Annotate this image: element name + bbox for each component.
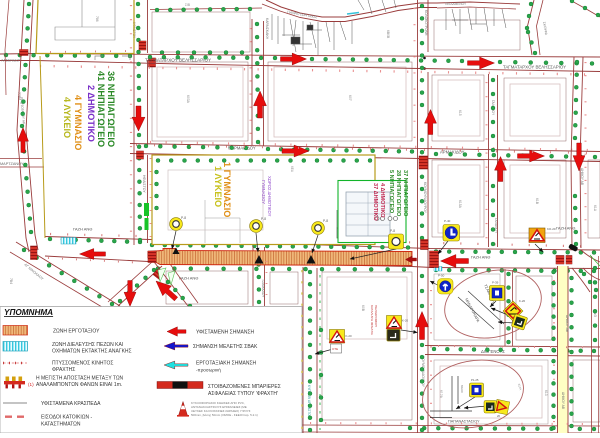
svg-text:20: 20 (497, 414, 501, 418)
svg-text:ΚΟΛΟΚΟΤΡΩΝΗ: ΚΟΛΟΚΟΤΡΩΝΗ (424, 10, 428, 36)
svg-text:Ρ-8: Ρ-8 (323, 219, 328, 223)
svg-text:ΚΥΠΡΙΩΝ ΑΓΩΝΙΣΤΩΝ: ΚΥΠΡΙΩΝ ΑΓΩΝΙΣΤΩΝ (307, 385, 311, 419)
svg-text:ΜΕΩΣ: ΜΕΩΣ (460, 385, 464, 393)
svg-text:37 ΔΗΜΟΤΙΚΟ: 37 ΔΗΜΟΤΙΚΟ (372, 183, 378, 221)
svg-text:Ρ-40: Ρ-40 (444, 219, 451, 223)
svg-text:500mm, βάσης 50mm (ΟΜΟΕ - ΣΕΕΟ: 500mm, βάσης 50mm (ΟΜΟΕ - ΣΕΕΟ/παρ. 5.2.… (191, 413, 258, 417)
svg-text:ΣΗΜΑΝΣΗ ΜΕΛΕΤΗΣ ΣΒΑΚ: ΣΗΜΑΝΣΗ ΜΕΛΕΤΗΣ ΣΒΑΚ (193, 344, 258, 350)
svg-text:6ΕΑ: 6ΕΑ (290, 166, 294, 173)
svg-text:ΖΩΝΗ ΕΡΓΟΤΑΞΙΟΥ: ΖΩΝΗ ΕΡΓΟΤΑΞΙΟΥ (53, 329, 100, 335)
svg-text:Ρ-8: Ρ-8 (181, 216, 186, 220)
svg-text:ΥΦΙΣΤΑΜΕΝΗ ΣΗΜΑΝΣΗ: ΥΦΙΣΤΑΜΕΝΗ ΣΗΜΑΝΣΗ (196, 330, 255, 336)
svg-text:28 ΝΗΠΙΑΓΩΓΕΙΟ: 28 ΝΗΠΙΑΓΩΓΕΙΟ (395, 170, 401, 217)
svg-text:6Β0Β: 6Β0Β (386, 30, 390, 39)
svg-text:Ρ-39: Ρ-39 (492, 281, 499, 285)
svg-text:ΕΡΓΟΤΑΞΙΑΚΗ ΣΗΜΑΝΣΗ: ΕΡΓΟΤΑΞΙΑΚΗ ΣΗΜΑΝΣΗ (196, 361, 257, 367)
svg-text:60Β: 60Β (361, 305, 365, 312)
svg-text:ΠΕΙΔΑΜΕΝΟΥ: ΠΕΙΔΑΜΕΝΟΥ (445, 2, 467, 6)
svg-text:5 ΝΗΠΙΑΓΩΓΕΙΟ: 5 ΝΗΠΙΑΓΩΓΕΙΟ (388, 170, 394, 214)
svg-text:61Δ: 61Δ (593, 205, 597, 212)
svg-text:615: 615 (458, 110, 462, 116)
svg-text:ΔΗΜΟΥ ΑΒ: ΔΗΜΟΥ ΑΒ (561, 392, 565, 410)
svg-text:4 ΔΗΜΟΤΙΚΟ: 4 ΔΗΜΟΤΙΚΟ (379, 183, 385, 218)
svg-text:ΤΑΓΜΑΤΑΡΧΟΥ ΒΕΛΗΣΣΑΡΙΟΥ: ΤΑΓΜΑΤΑΡΧΟΥ ΒΕΛΗΣΣΑΡΙΟΥ (503, 65, 566, 70)
svg-text:615Α: 615Α (458, 200, 462, 209)
svg-text:ΥΠΟΜΝΗΜΑ: ΥΠΟΜΝΗΜΑ (4, 308, 53, 317)
svg-text:Ρ-50: Ρ-50 (438, 274, 445, 278)
svg-text:ΕΙΣΟΔΟΙ ΚΑΤΟΙΚΙΩΝ -: ΕΙΣΟΔΟΙ ΚΑΤΟΙΚΙΩΝ - (41, 415, 93, 421)
svg-text:ΓΑΖΗ ΑΝΘ: ΓΑΖΗ ΑΝΘ (471, 255, 490, 260)
svg-text:ΛΑΣΕΝΙΔΟΥ: ΛΑΣΕΝΙΔΟΥ (1, 59, 22, 63)
svg-text:4 ΛΥΚΕΙΟ: 4 ΛΥΚΕΙΟ (62, 97, 72, 138)
svg-text:ΔΗΜΟΥ ΑΒ: ΔΗΜΟΥ ΑΒ (580, 168, 584, 186)
svg-text:ΑΝΑΛΑΜΠΟΝΤΩΝ ΦΑΝΩΝ ΕΙΝΑΙ 1m.: ΑΝΑΛΑΜΠΟΝΤΩΝ ΦΑΝΩΝ ΕΙΝΑΙ 1m. (36, 382, 122, 388)
svg-text:37 ΝΗΠΙΑΓΩΓΕΙΟ: 37 ΝΗΠΙΑΓΩΓΕΙΟ (402, 170, 408, 217)
svg-text:ΥΦΙΣΤΑΜΕΝΑ ΚΡΑΣΠΕΔΑ: ΥΦΙΣΤΑΜΕΝΑ ΚΡΑΣΠΕΔΑ (41, 401, 101, 407)
svg-text:ΚΑΤΑΣΤΗΜΑΤΩΝ: ΚΑΤΑΣΤΗΜΑΤΩΝ (41, 422, 81, 428)
svg-text:1 ΛΥΚΕΙΟ: 1 ΛΥΚΕΙΟ (213, 166, 223, 207)
svg-text:41 ΝΗΠΙΑΓΩΓΕΙΟ: 41 ΝΗΠΙΑΓΩΓΕΙΟ (96, 71, 106, 147)
svg-text:607: 607 (348, 95, 352, 101)
svg-text:ΚΑΡΑΙΣΚΑΚΗ: ΚΑΡΑΙΣΚΑΚΗ (265, 18, 269, 40)
svg-text:ΚΑΤΑΛΗΨΗ ΦΡΕΑΤΙΑ: ΚΑΤΑΛΗΨΗ ΦΡΕΑΤΙΑ (370, 305, 374, 335)
svg-text:ΓΑΖΗ ΑΝΘ: ΓΑΖΗ ΑΝΘ (556, 226, 575, 231)
svg-text:ΦΡΑΧΤΗΣ: ΦΡΑΧΤΗΣ (52, 367, 75, 373)
svg-text:ΜΑΡΤΖΑΝΟΥ: ΜΑΡΤΖΑΝΟΥ (0, 162, 24, 166)
svg-text:Κ-20: Κ-20 (519, 299, 525, 303)
svg-text:ΤΣΑΜΑΔΟΥ: ΤΣΑΜΑΔΟΥ (261, 279, 265, 298)
svg-text:ΚΟΥΜΟΥΝΔΟΥΡΟΥ: ΚΟΥΜΟΥΝΔΟΥΡΟΥ (423, 182, 427, 214)
svg-text:Κ-20: Κ-20 (402, 319, 408, 323)
svg-text:4 ΓΥΜΝΑΣΙΟ: 4 ΓΥΜΝΑΣΙΟ (73, 95, 83, 150)
svg-text:(1): (1) (28, 382, 34, 387)
svg-text:ΟΧΗΜΑΤΩΝ ΕΚΤΑΚΤΗΣ ΑΝΑΓΚΗΣ: ΟΧΗΜΑΤΩΝ ΕΚΤΑΚΤΗΣ ΑΝΑΓΚΗΣ (52, 349, 132, 355)
svg-text:ΓΑΖΗ ΑΝΘ: ΓΑΖΗ ΑΝΘ (179, 276, 198, 281)
svg-text:36 ΝΗΠΙΑΓΩΓΕΙΟ: 36 ΝΗΠΙΑΓΩΓΕΙΟ (106, 71, 116, 147)
svg-text:ΠΤΥΣΣΟΜΕΝΟΣ ΚΙΝΗΤΟΣ: ΠΤΥΣΣΟΜΕΝΟΣ ΚΙΝΗΤΟΣ (52, 361, 113, 367)
svg-text:Η ΜΕΓΙΣΤΗ ΑΠΟΣΤΑΣΗ ΜΕΤΑΞΥ ΤΩΝ: Η ΜΕΓΙΣΤΗ ΑΠΟΣΤΑΣΗ ΜΕΤΑΞΥ ΤΩΝ (36, 376, 124, 382)
svg-text:ΔΗΜΟΥ ΑΒ: ΔΗΜΟΥ ΑΒ (565, 315, 569, 333)
svg-text:ΟΤΕ: ΟΤΕ (332, 347, 338, 351)
svg-text:ΣΙΒ: ΣΙΒ (185, 3, 190, 7)
svg-text:ΧΩΡΟΣ ΔΗΜΟΤΙΚΟΥ: ΧΩΡΟΣ ΔΗΜΟΤΙΚΟΥ (267, 176, 272, 217)
svg-text:Ρ1-25: Ρ1-25 (471, 378, 479, 382)
svg-text:2 ΔΗΜΟΤΙΚΟ: 2 ΔΗΜΟΤΙΚΟ (86, 85, 96, 142)
svg-text:ΣΤΟΙΒΑΖΟΜΕΝΕΣ ΜΠΑΡΙΕΡΕΣ: ΣΤΟΙΒΑΖΟΜΕΝΕΣ ΜΠΑΡΙΕΡΕΣ (208, 384, 281, 390)
svg-text:613: 613 (544, 390, 548, 396)
svg-text:Ρ-8: Ρ-8 (390, 229, 395, 233)
svg-text:-προσωρινή: -προσωρινή (196, 367, 221, 373)
svg-text:ΓΑΖΗ ΑΝΘ: ΓΑΖΗ ΑΝΘ (73, 227, 92, 232)
svg-text:ΠΕΖΟΔΡΟΜΙΟΥ: ΠΕΖΟΔΡΟΜΙΟΥ (374, 305, 378, 327)
svg-text:ΚΟ-20: ΚΟ-20 (547, 227, 556, 231)
svg-text:Ρ-8: Ρ-8 (261, 217, 266, 221)
svg-text:603Α: 603Α (186, 95, 190, 104)
svg-text:ΑΣΦΑΛΕΙΑΣ ΤΥΠΟΥ 'ΦΡΑΧΤΗ': ΑΣΦΑΛΕΙΑΣ ΤΥΠΟΥ 'ΦΡΑΧΤΗ' (208, 391, 278, 397)
svg-text:61Β: 61Β (535, 198, 539, 205)
svg-text:ΓΥΜΝΑΣΙΟΥ: ΓΥΜΝΑΣΙΟΥ (261, 180, 266, 204)
svg-text:786: 786 (95, 16, 99, 22)
svg-text:ΖΩΝΗ ΔΙΕΛΕΥΣΗΣ ΠΕΖΩΝ ΚΑΙ: ΖΩΝΗ ΔΙΕΛΕΥΣΗΣ ΠΕΖΩΝ ΚΑΙ (52, 342, 123, 348)
svg-text:ΗΦΑΙΣΤΟΥ: ΗΦΑΙΣΤΟΥ (142, 175, 146, 193)
svg-text:ΓΑΛΑΝΟΥ: ΓΑΛΑΝΟΥ (494, 218, 498, 234)
svg-text:ΠΑΠΑΝΑΣΤΑΣΙΟΥ: ΠΑΠΑΝΑΣΤΑΣΙΟΥ (448, 420, 480, 424)
svg-text:7Β4: 7Β4 (9, 278, 13, 284)
svg-text:Κ-20: Κ-20 (346, 334, 352, 338)
